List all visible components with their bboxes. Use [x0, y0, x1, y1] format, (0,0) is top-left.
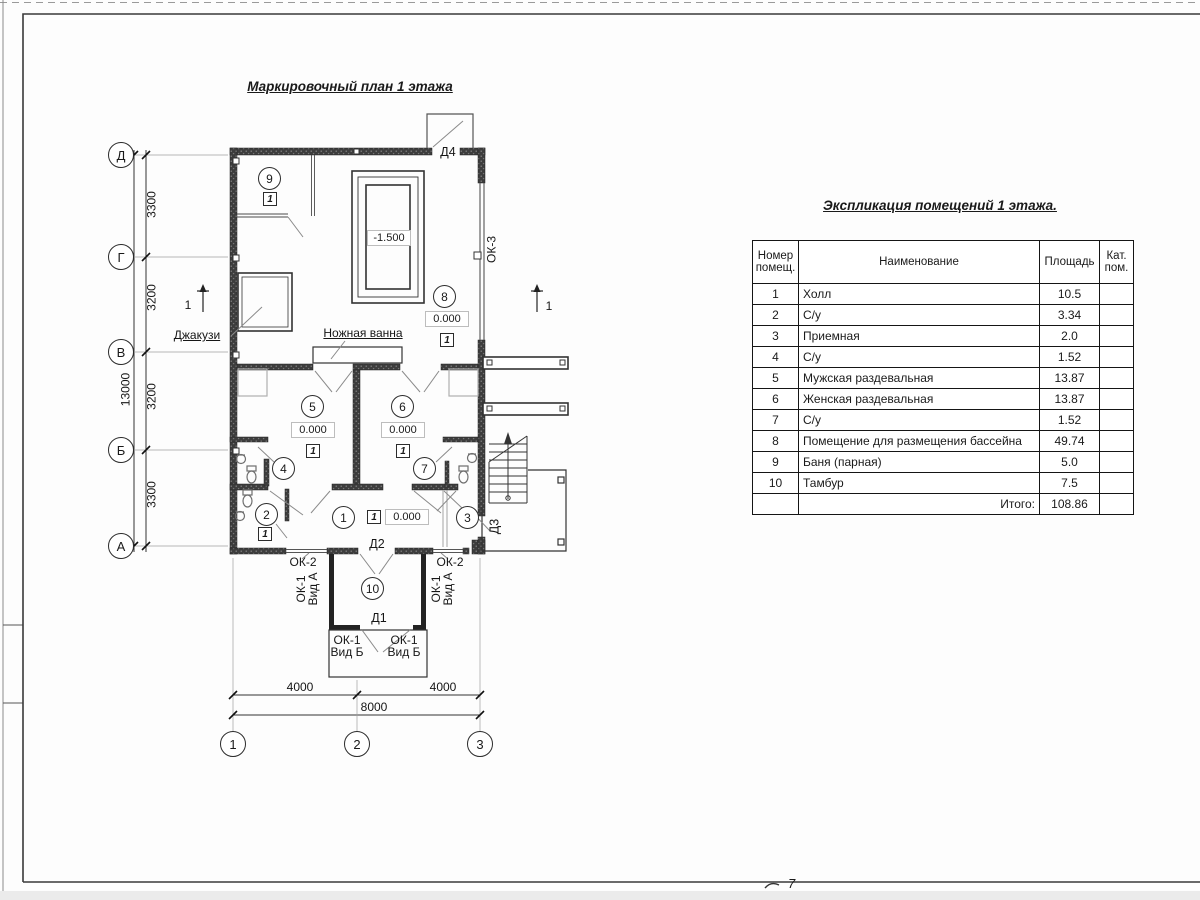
floor-box-hall: 1: [367, 510, 381, 524]
room-circle-1: 1: [332, 506, 355, 529]
door-label-d4: Д4: [436, 146, 460, 159]
floor-box-room8: 1: [440, 333, 454, 347]
table-row: 9Баня (парная)5.0: [753, 452, 1134, 473]
table-row: 10Тамбур7.5: [753, 473, 1134, 494]
floor-box-room6: 1: [396, 444, 410, 458]
window-label-ok1-vida-left: ОК-1Вид А: [295, 568, 319, 610]
floor-box-room9: 1: [263, 192, 277, 206]
dim-left-total: 13000: [120, 366, 133, 414]
grid-col-2: 2: [344, 731, 370, 757]
grid-row-g: Г: [108, 244, 134, 270]
floor-box-room5: 1: [306, 444, 320, 458]
section-mark-right: 1: [543, 300, 555, 313]
dim-bottom-total: 8000: [354, 701, 394, 714]
table-row: 5Мужская раздевальная13.87: [753, 368, 1134, 389]
level-room5: 0.000: [291, 422, 335, 438]
floor-box-room2: 1: [258, 527, 272, 541]
dim-left-2: 3200: [146, 278, 159, 318]
room-circle-4: 4: [272, 457, 295, 480]
table-row: 3Приемная2.0: [753, 326, 1134, 347]
table-row: 7С/у1.52: [753, 410, 1134, 431]
stairs: [489, 432, 527, 503]
explication-table: Номер помещ. Наименование Площадь Кат. п…: [752, 240, 1134, 515]
dim-bottom-1: 4000: [280, 681, 320, 694]
window-label-ok1-vidb-left: ОК-1Вид Б: [325, 634, 369, 658]
table-row: 8Помещение для размещения бассейна49.74: [753, 431, 1134, 452]
room-circle-8: 8: [433, 285, 456, 308]
table-row: 4С/у1.52: [753, 347, 1134, 368]
room-circle-6: 6: [391, 395, 414, 418]
drawing-sheet: Маркировочный план 1 этажа Д Г В Б А 1 2…: [0, 0, 1200, 900]
door-label-d1: Д1: [367, 612, 391, 625]
plan-title: Маркировочный план 1 этажа: [229, 79, 471, 94]
grid-row-d: Д: [108, 142, 134, 168]
room-circle-10: 10: [361, 577, 384, 600]
dim-left-3: 3200: [146, 377, 159, 417]
door-label-d3: Д3: [489, 515, 502, 539]
window-label-ok3: ОК-3: [486, 233, 499, 267]
table-row: 2С/у3.34: [753, 305, 1134, 326]
grid-col-1: 1: [220, 731, 246, 757]
level-hall: 0.000: [385, 509, 429, 525]
total-label: Итого:: [799, 494, 1040, 515]
table-row: 6Женская раздевальная13.87: [753, 389, 1134, 410]
window-label-ok1-vidb-right: ОК-1Вид Б: [382, 634, 426, 658]
table-row: 1Холл10.5: [753, 284, 1134, 305]
d4-vestibule: [427, 114, 473, 148]
foot-bath-label: Ножная ванна: [313, 327, 413, 340]
total-value: 108.86: [1040, 494, 1100, 515]
pen-mark: [765, 884, 779, 888]
room-circle-5: 5: [301, 395, 324, 418]
table-total-row: Итого: 108.86: [753, 494, 1134, 515]
grid-row-b: Б: [108, 437, 134, 463]
level-room6: 0.000: [381, 422, 425, 438]
col-header-num: Номер помещ.: [753, 241, 799, 284]
page-number-mark: 7: [788, 876, 795, 891]
section-mark-left: 1: [182, 299, 194, 312]
grid-col-3: 3: [467, 731, 493, 757]
col-header-name: Наименование: [799, 241, 1040, 284]
level-pool: -1.500: [367, 230, 411, 246]
room-circle-3: 3: [456, 506, 479, 529]
foot-bath: [313, 347, 402, 363]
room-circle-9: 9: [258, 167, 281, 190]
grid-row-v: В: [108, 339, 134, 365]
level-room8: 0.000: [425, 311, 469, 327]
door-label-d2: Д2: [365, 538, 389, 551]
col-header-area: Площадь: [1040, 241, 1100, 284]
grid-row-a: А: [108, 533, 134, 559]
dim-bottom-2: 4000: [423, 681, 463, 694]
scan-bottom-strip: [0, 891, 1200, 900]
room-circle-7: 7: [413, 457, 436, 480]
jacuzzi-label: Джакузи: [165, 329, 229, 342]
window-label-ok1-vida-right: ОК-1Вид А: [430, 568, 454, 610]
right-beams: [483, 357, 568, 415]
col-header-cat: Кат. пом.: [1100, 241, 1134, 284]
dimension-lines: [130, 150, 484, 731]
dim-left-4: 3300: [146, 475, 159, 515]
table-header-row: Номер помещ. Наименование Площадь Кат. п…: [753, 241, 1134, 284]
room-circle-2: 2: [255, 503, 278, 526]
explication-title: Экспликация помещений 1 этажа.: [770, 198, 1110, 213]
dim-left-1: 3300: [146, 185, 159, 225]
